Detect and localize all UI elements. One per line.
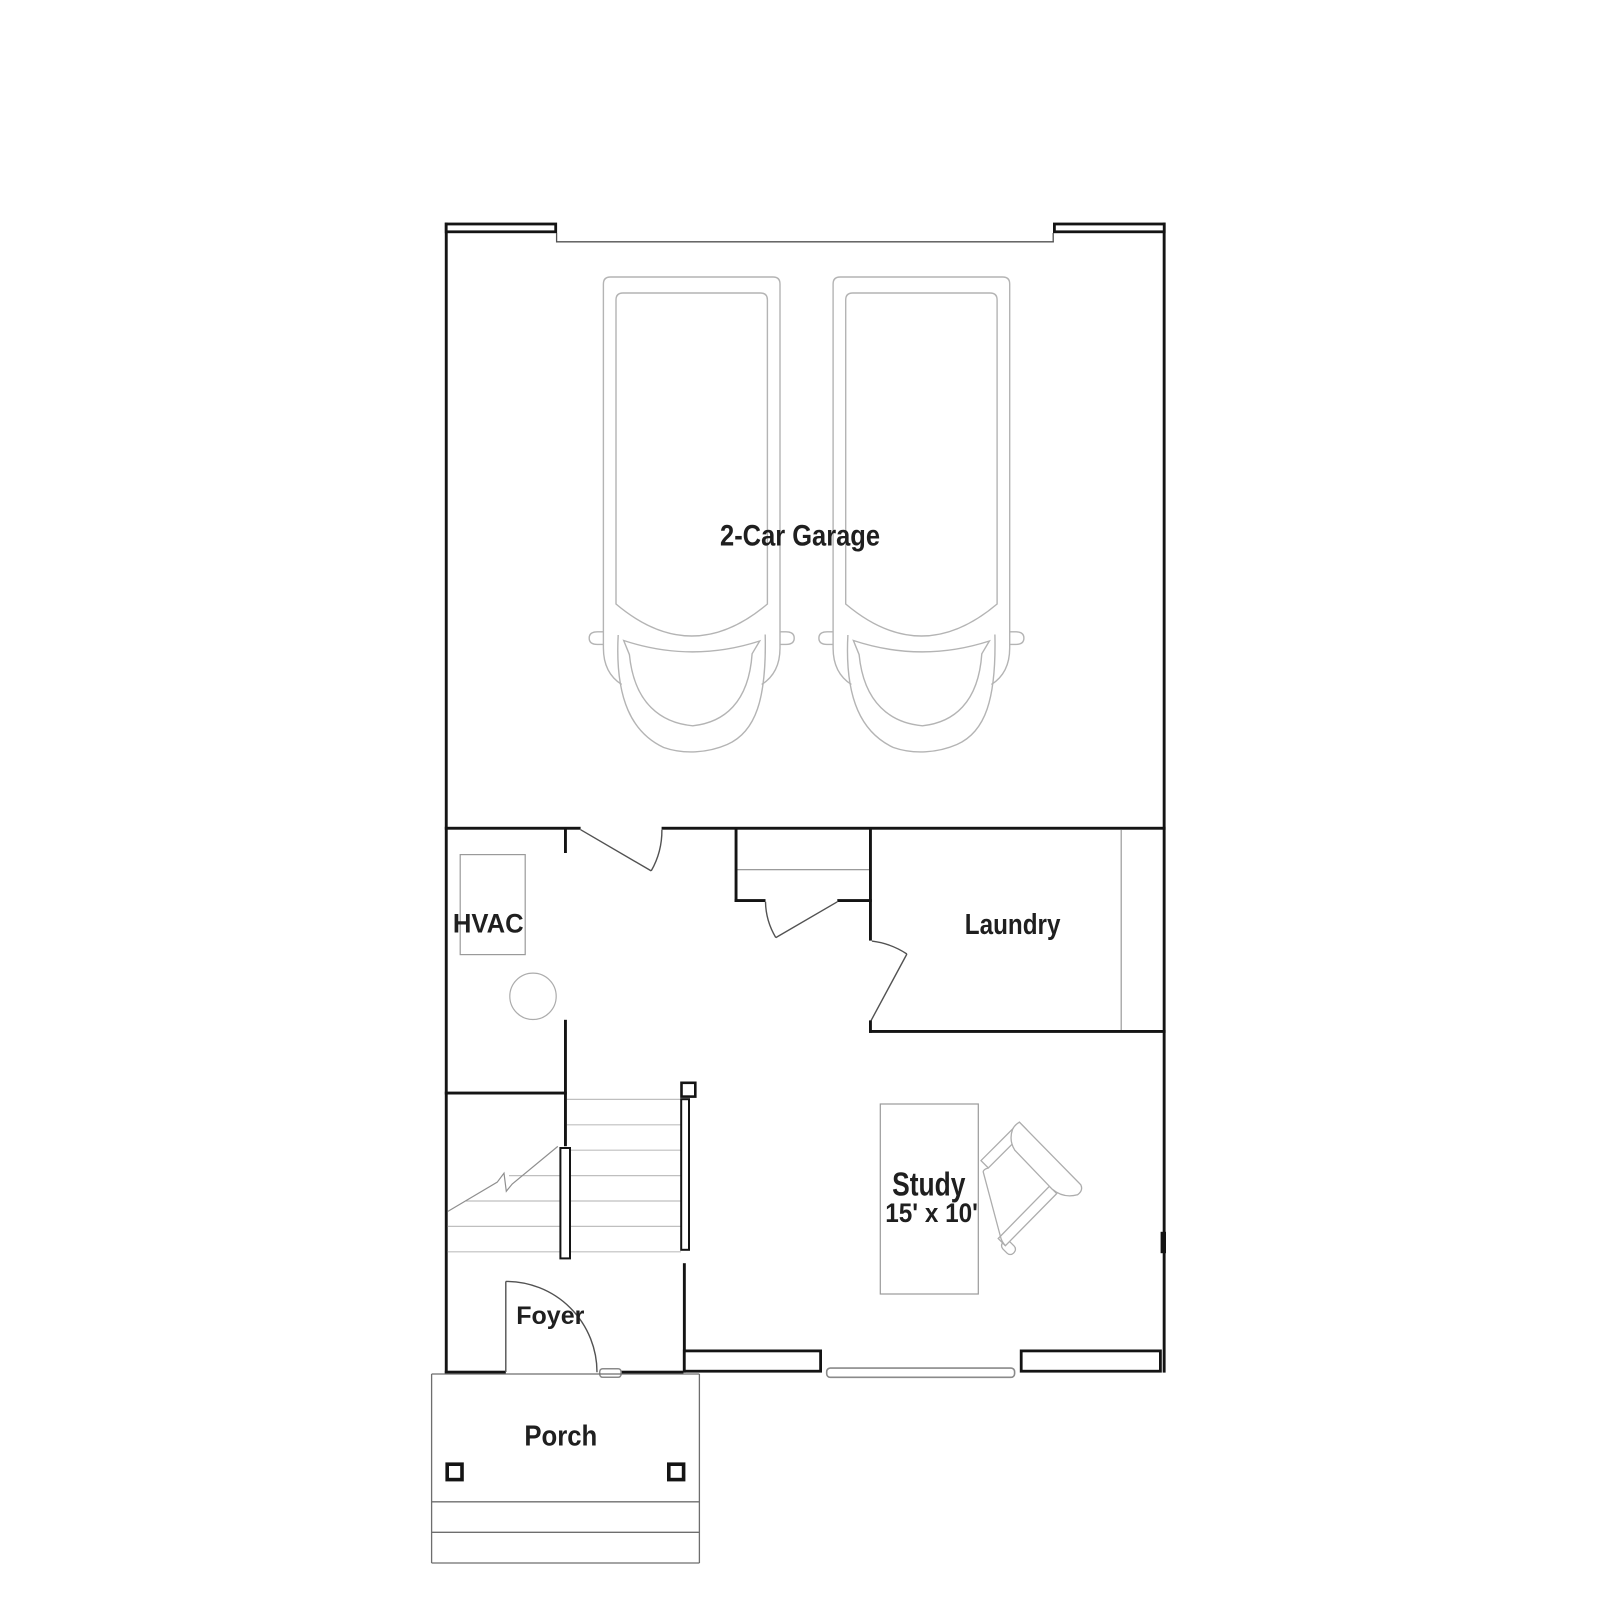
svg-text:Foyer: Foyer [516,1302,584,1330]
svg-text:2-Car Garage: 2-Car Garage [720,519,880,552]
svg-text:HVAC: HVAC [453,908,524,939]
svg-text:Porch: Porch [524,1419,597,1452]
svg-text:15' x 10': 15' x 10' [885,1199,978,1228]
svg-text:Laundry: Laundry [965,908,1061,940]
